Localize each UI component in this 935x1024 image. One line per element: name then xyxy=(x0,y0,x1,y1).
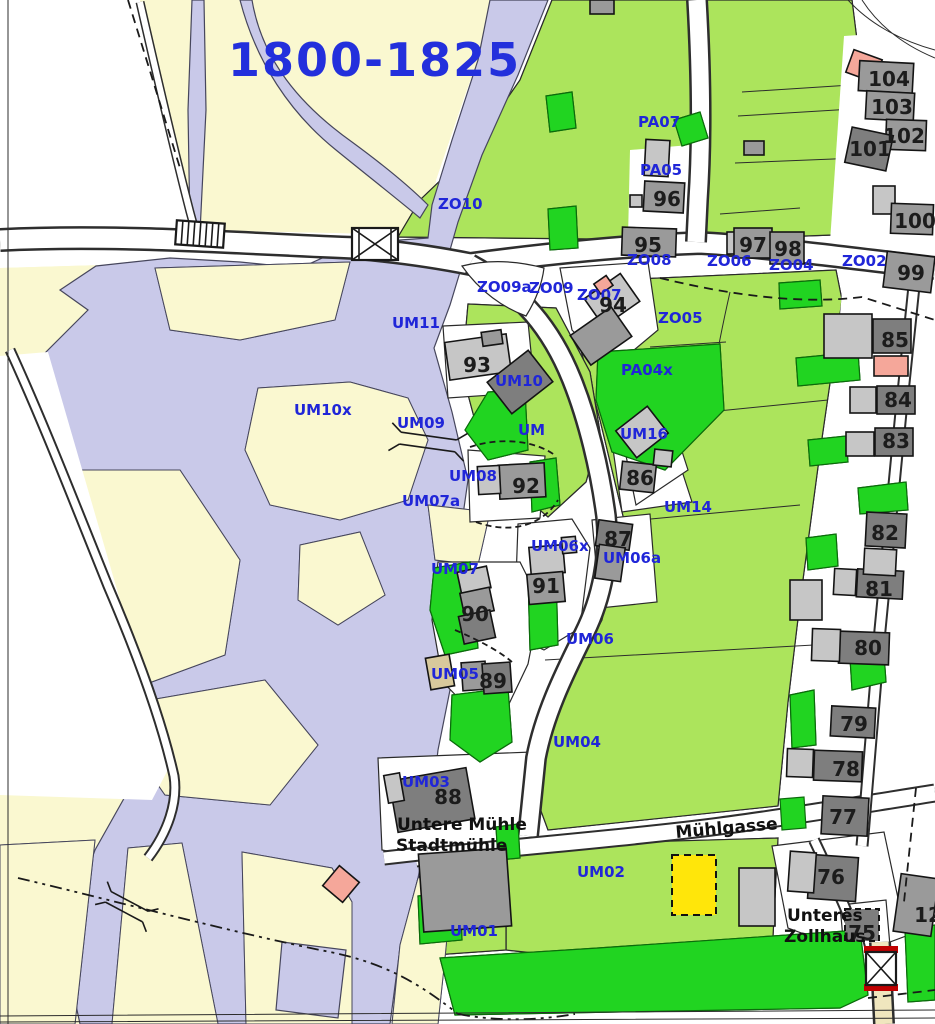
building-number: 82 xyxy=(871,521,899,545)
building-number: 85 xyxy=(881,328,909,352)
map-canvas: 1800-1825 PA07PA05ZO10ZO08ZO06ZO04ZO02ZO… xyxy=(0,0,935,1024)
building-number: 95 xyxy=(634,233,662,257)
building-number: 86 xyxy=(626,466,654,490)
parcel-label: UM06x xyxy=(531,537,589,555)
building-number: 77 xyxy=(829,805,857,829)
building-number: 103 xyxy=(871,95,913,119)
parcel-label: PA04x xyxy=(621,361,673,379)
parcel-label: ZO09a xyxy=(477,278,532,296)
parcel-label: UM10x xyxy=(294,401,352,419)
building-number: 96 xyxy=(653,187,681,211)
parcel-label: UM02 xyxy=(577,863,625,881)
place-name: Zollhaus xyxy=(784,927,865,947)
building-number: 83 xyxy=(882,429,910,453)
building-number: 93 xyxy=(463,353,491,377)
parcel-label: UM10 xyxy=(495,372,543,390)
building-mill-large xyxy=(418,848,511,932)
parcel-label: UM01 xyxy=(450,922,498,940)
parcel-label: UM16 xyxy=(620,425,668,443)
building-yellow-highlight xyxy=(672,855,716,915)
ladder-bridge xyxy=(175,220,225,247)
building-number: 100 xyxy=(894,209,935,233)
place-name: Stadtmühle xyxy=(396,836,507,856)
building-number: 90 xyxy=(461,602,489,626)
building-number: 12 xyxy=(914,903,935,927)
building-number: 99 xyxy=(897,261,925,285)
parcel-label: UM14 xyxy=(664,498,712,516)
building-number: 104 xyxy=(868,67,910,91)
parcel-label: UM06a xyxy=(603,549,661,567)
parcel-label: UM08 xyxy=(449,467,497,485)
parcel-label: UM04 xyxy=(553,733,601,751)
parcel-label: UM xyxy=(518,421,545,439)
building-number: 92 xyxy=(512,474,540,498)
building-number: 78 xyxy=(832,757,860,781)
parcel-label: UM09 xyxy=(397,414,445,432)
building-number: 88 xyxy=(434,785,462,809)
building-number: 89 xyxy=(479,669,507,693)
building-number: 94 xyxy=(599,293,627,317)
x-bridge xyxy=(352,228,398,260)
building-number: 81 xyxy=(865,577,893,601)
parcel-label: PA07 xyxy=(638,113,680,131)
parcel-label: ZO10 xyxy=(438,195,483,213)
parcel-label: ZO02 xyxy=(842,252,887,270)
building-number: 76 xyxy=(817,865,845,889)
parcel-label: ZO09 xyxy=(529,279,574,297)
building-number: 101 xyxy=(849,137,891,161)
building-number: 91 xyxy=(532,574,560,598)
building-number: 79 xyxy=(840,712,868,736)
parcel-label: UM11 xyxy=(392,314,440,332)
place-name: Untere Mühle xyxy=(397,815,527,835)
building-number: 97 xyxy=(739,233,767,257)
place-name: Unteres xyxy=(787,906,863,926)
building-number: 87 xyxy=(604,527,632,551)
map-title: 1800-1825 xyxy=(228,33,521,87)
parcel-label: UM07 xyxy=(431,560,479,578)
parcel-label: UM06 xyxy=(566,630,614,648)
building-number: 98 xyxy=(774,237,802,261)
historical-map-svg: 1800-1825 PA07PA05ZO10ZO08ZO06ZO04ZO02ZO… xyxy=(0,0,935,1024)
parcel-label: PA05 xyxy=(640,161,682,179)
toll-bridge xyxy=(864,946,898,991)
building-number: 80 xyxy=(854,636,882,660)
parcel-label: UM05 xyxy=(431,665,479,683)
building-number: 84 xyxy=(884,388,912,412)
parcel-label: UM07a xyxy=(402,492,460,510)
parcel-label: ZO05 xyxy=(658,309,703,327)
